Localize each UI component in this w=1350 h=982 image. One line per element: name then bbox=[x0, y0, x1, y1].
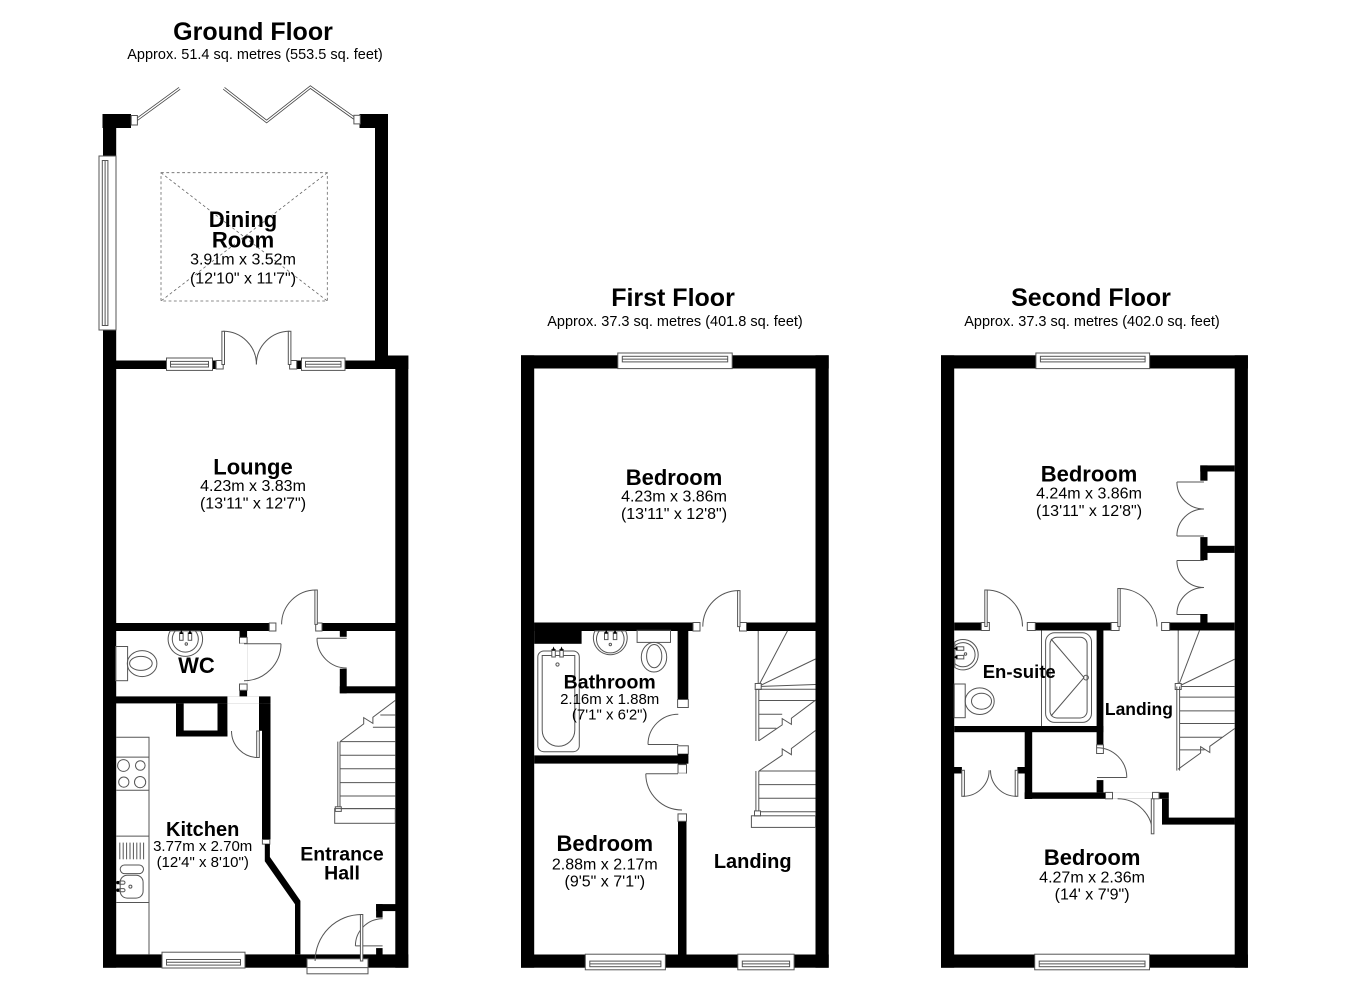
svg-text:Bedroom: Bedroom bbox=[1044, 845, 1141, 870]
svg-text:Ground Floor: Ground Floor bbox=[173, 18, 333, 46]
svg-text:Approx. 37.3 sq. metres (402.0: Approx. 37.3 sq. metres (402.0 sq. feet) bbox=[964, 314, 1220, 330]
svg-text:2.16m x 1.88m: 2.16m x 1.88m bbox=[560, 691, 659, 708]
svg-text:(13'11" x 12'8"): (13'11" x 12'8") bbox=[621, 506, 727, 523]
svg-text:Bedroom: Bedroom bbox=[1041, 462, 1138, 487]
svg-text:Bedroom: Bedroom bbox=[626, 465, 723, 490]
svg-text:Bedroom: Bedroom bbox=[557, 831, 654, 856]
svg-text:First Floor: First Floor bbox=[611, 284, 735, 312]
svg-text:3.91m x 3.52m: 3.91m x 3.52m bbox=[190, 252, 296, 269]
svg-text:Approx. 51.4 sq. metres (553.5: Approx. 51.4 sq. metres (553.5 sq. feet) bbox=[127, 47, 383, 63]
svg-text:Hall: Hall bbox=[324, 862, 360, 884]
svg-text:(13'11" x 12'8"): (13'11" x 12'8") bbox=[1036, 503, 1142, 520]
svg-text:4.24m x 3.86m: 4.24m x 3.86m bbox=[1036, 486, 1142, 503]
svg-text:4.23m x 3.83m: 4.23m x 3.83m bbox=[200, 478, 306, 495]
svg-text:4.27m x 2.36m: 4.27m x 2.36m bbox=[1039, 870, 1145, 887]
svg-text:(9'5" x 7'1"): (9'5" x 7'1") bbox=[564, 873, 645, 890]
svg-text:2.88m x 2.17m: 2.88m x 2.17m bbox=[552, 856, 658, 873]
svg-text:Second Floor: Second Floor bbox=[1011, 284, 1171, 312]
svg-text:(12'10" x 11'7"): (12'10" x 11'7") bbox=[190, 270, 296, 287]
svg-text:En-suite: En-suite bbox=[983, 661, 1056, 682]
svg-text:4.23m x 3.86m: 4.23m x 3.86m bbox=[621, 489, 727, 506]
svg-text:(12'4" x 8'10"): (12'4" x 8'10") bbox=[157, 854, 249, 871]
svg-text:Room: Room bbox=[212, 228, 274, 253]
svg-text:Lounge: Lounge bbox=[213, 455, 292, 480]
svg-text:(7'1" x 6'2"): (7'1" x 6'2") bbox=[572, 706, 648, 723]
svg-text:Landing: Landing bbox=[1105, 699, 1173, 719]
svg-text:3.77m x 2.70m: 3.77m x 2.70m bbox=[153, 838, 252, 855]
svg-text:Approx. 37.3 sq. metres (401.8: Approx. 37.3 sq. metres (401.8 sq. feet) bbox=[547, 314, 803, 330]
svg-text:Landing: Landing bbox=[714, 851, 792, 873]
svg-text:(14' x 7'9"): (14' x 7'9") bbox=[1055, 887, 1130, 904]
svg-text:(13'11" x 12'7"): (13'11" x 12'7") bbox=[200, 496, 306, 513]
svg-text:WC: WC bbox=[178, 653, 215, 678]
